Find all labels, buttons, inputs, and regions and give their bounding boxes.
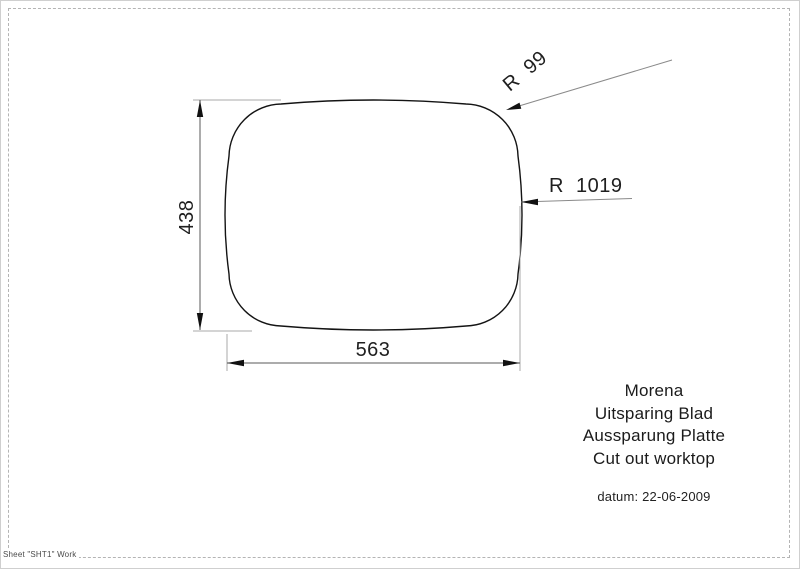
dimension-text-width: 563 [356, 339, 391, 361]
cutout-outline [225, 100, 522, 330]
date-label: datum: 22-06-2009 [538, 486, 770, 509]
arrowhead-width-left [227, 360, 244, 366]
radius-text-side: R 1019 [549, 175, 623, 197]
title-block: Morena Uitsparing Blad Aussparung Platte… [538, 380, 770, 509]
title-line-dutch: Uitsparing Blad [538, 403, 770, 426]
title-line-english: Cut out worktop [538, 448, 770, 471]
drawing-sheet: 438 563 R 99 R 1019 Morena Uitsparing Bl… [0, 0, 800, 569]
arrowhead-height-top [197, 100, 203, 117]
title-line-german: Aussparung Platte [538, 425, 770, 448]
radius-text-corner: R 99 [499, 47, 552, 96]
arrowhead-side-radius [521, 199, 538, 205]
dimension-text-height: 438 [176, 200, 198, 235]
title-line-product: Morena [538, 380, 770, 403]
arrowhead-width-right [503, 360, 520, 366]
arrowhead-height-bottom [197, 313, 203, 330]
sheet-tab-label: Sheet "SHT1" Work [3, 550, 79, 559]
arrowhead-corner-radius [506, 103, 521, 110]
